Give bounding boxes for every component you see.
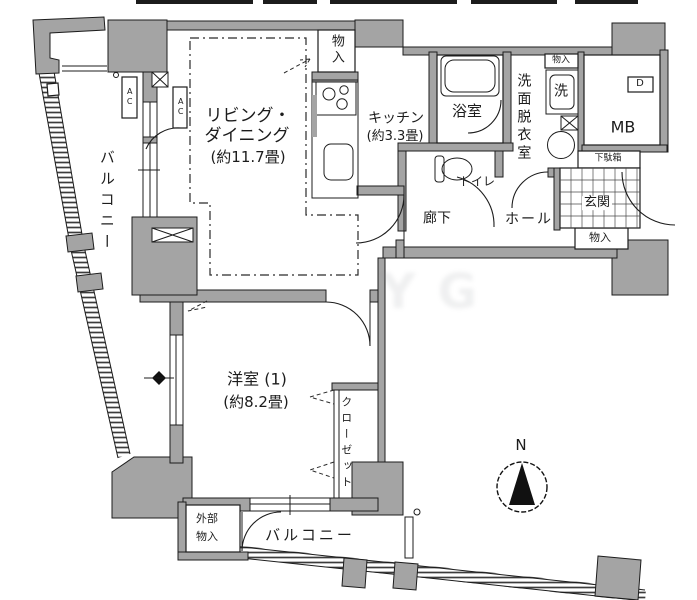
railing-pillar [66,233,94,252]
stove [316,82,356,115]
compass-icon [497,462,547,512]
bathroom-label: 浴室 [452,104,482,120]
toilet-tank [435,156,444,182]
closet-label: クローゼット [340,396,352,492]
washroom-door-swing [512,172,548,208]
bottom-balcony-railing [232,545,646,600]
kitchen-size: (約3.3畳) [367,130,424,144]
living-dining-label-1: リビング・ [206,108,291,126]
hall-label: ホール [505,213,553,228]
watermark: YG [381,264,499,320]
railing-pillar [393,562,418,590]
living-dining-label-2: ダイニング [205,128,290,146]
western-room-label: 洋室 (1) [227,372,287,389]
ld-door-swing [356,195,404,243]
washer-label: 洗 [554,85,568,100]
ac-label-2: AC [176,97,184,117]
floor-plan-drawing [0,0,697,600]
balcony-left-label: バルコニー [98,150,114,255]
top-storage-label: 物入 [329,34,343,66]
entrance-storage-label: 物入 [589,232,611,244]
hallway-label: 廊下 [423,212,451,227]
meter-box-label: MB [611,120,636,137]
washroom-label: 洗面脱衣室 [516,73,531,163]
external-storage-label-1: 外部 [196,513,218,525]
western-room-door-swing [326,302,370,346]
closet-folding-door [310,390,334,404]
compass-north-label: N [515,438,526,454]
balcony-partition [405,517,413,558]
balcony-bottom-label: バルコニー [265,528,355,544]
closet-folding-door [310,462,334,478]
shoe-cabinet-label: 下駄箱 [594,154,621,163]
balcony-corner-wall [33,17,105,74]
ac-label-1: AC [125,87,133,107]
railing-pillar [595,556,641,600]
floor-plan: YG リビング・ ダイニング (約11.7畳) キッチン (約3.3畳) 浴室 … [0,0,697,600]
left-balcony-railing [37,60,130,458]
bathroom-outline [437,55,503,143]
kitchen-label: キッチン [368,112,424,127]
western-room-size: (約8.2畳) [223,395,289,411]
railing-pillar [342,558,367,588]
toilet-label: トイレ [459,176,495,189]
wash-basin [548,132,575,159]
entrance-label: 玄関 [582,196,612,210]
external-storage-label-2: 物入 [196,531,218,543]
washroom-storage-label: 物入 [552,56,570,65]
living-dining-size: (約11.7畳) [210,150,285,166]
kitchen-sink [324,144,353,180]
duct-label: D [636,79,644,90]
railing-pillar [76,273,103,292]
top-boundary-dashes [136,0,638,4]
